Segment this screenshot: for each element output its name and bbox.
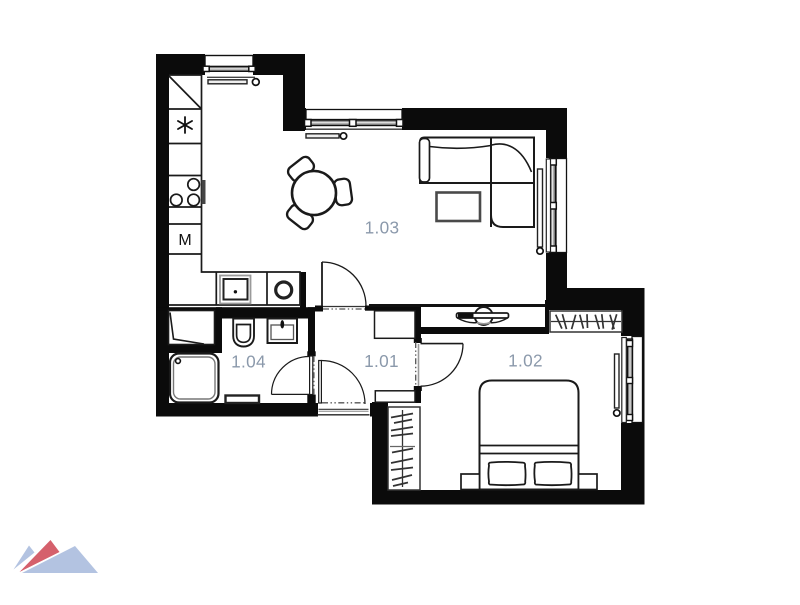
svg-text:1.03: 1.03 [365,218,400,238]
svg-text:M: M [178,232,191,249]
svg-text:1.02: 1.02 [508,351,543,371]
svg-text:1.01: 1.01 [364,351,399,371]
svg-text:1.04: 1.04 [231,352,266,372]
